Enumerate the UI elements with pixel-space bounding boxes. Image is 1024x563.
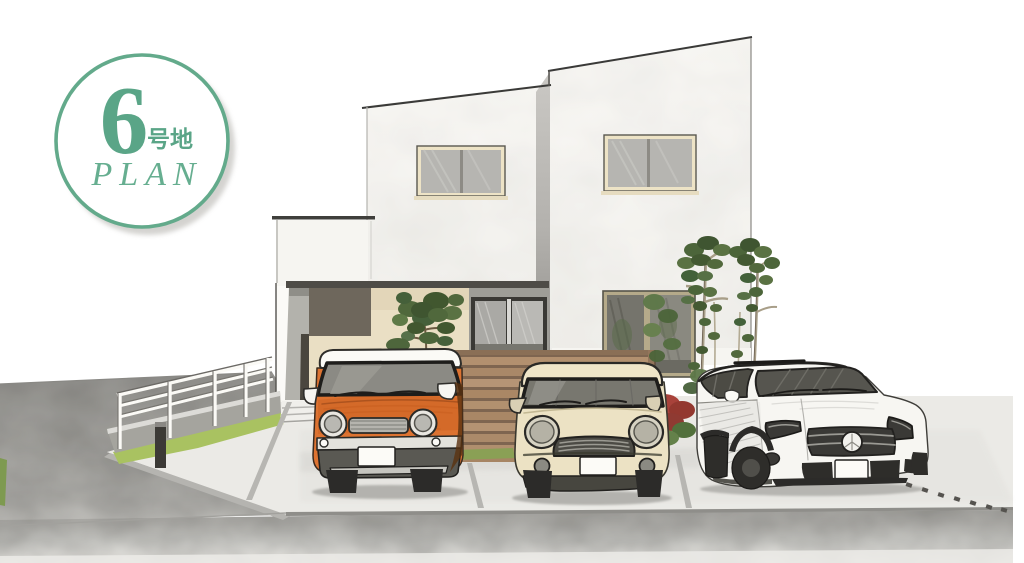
svg-text:PLAN: PLAN	[90, 156, 202, 193]
svg-text:号地: 号地	[147, 126, 193, 152]
